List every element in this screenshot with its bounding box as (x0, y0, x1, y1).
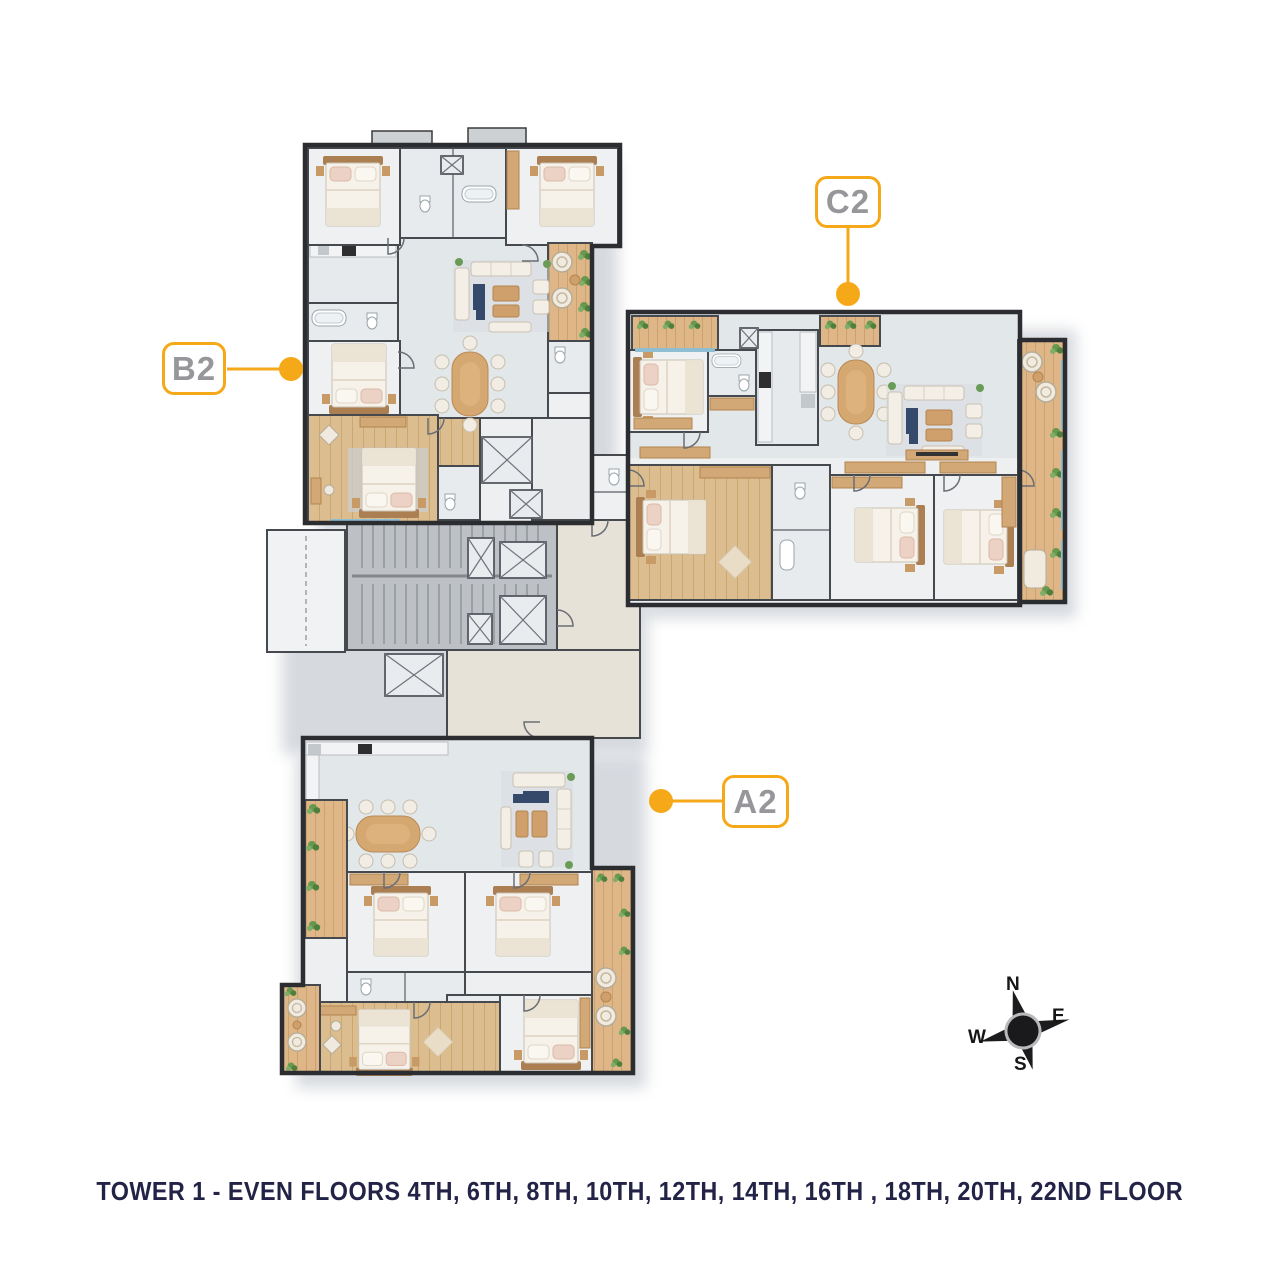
unit-badge-b2[interactable]: B2 (162, 342, 226, 395)
tv (916, 452, 958, 456)
bed (486, 886, 560, 956)
balcony-floor (632, 316, 718, 350)
bedroom-floor (548, 393, 592, 418)
balcony-floor (282, 985, 320, 1073)
vanity (320, 1006, 356, 1015)
bed (316, 156, 390, 226)
bed (352, 448, 426, 518)
unit-marker-dot-c2 (836, 282, 860, 306)
bathroom-floor (438, 466, 480, 520)
unit-badge-a2-label: A2 (733, 783, 777, 821)
sink (318, 246, 329, 255)
bed (349, 1010, 419, 1077)
sofa-set (886, 382, 984, 456)
unit-c2-plan (626, 310, 1065, 607)
fridge (308, 744, 321, 755)
compass-label-south: S (1014, 1054, 1027, 1076)
toilet (795, 483, 805, 499)
wicker-chair (596, 1006, 616, 1026)
unit-badge-c2-label: C2 (826, 183, 870, 221)
toilet (445, 494, 455, 510)
wicker-chair (288, 1033, 306, 1051)
side-table (601, 992, 611, 1002)
wardrobe (832, 477, 902, 488)
wardrobe (700, 467, 770, 478)
bed (633, 350, 703, 424)
ac-ledge (372, 128, 526, 145)
wicker-chair (552, 288, 572, 308)
stove (358, 744, 372, 754)
side-table (570, 275, 580, 285)
wardrobe (580, 998, 590, 1048)
toilet (609, 469, 619, 485)
toilet (361, 979, 371, 995)
unit-marker-dot-a2 (649, 789, 673, 813)
stove (342, 246, 356, 256)
wardrobe (507, 151, 519, 209)
lounge-chair (1024, 550, 1046, 588)
shelf (710, 398, 754, 410)
bed (322, 344, 396, 414)
toilet (367, 313, 377, 329)
toilet (555, 347, 565, 363)
bathtub (312, 310, 346, 326)
unit-badge-c2[interactable]: C2 (815, 176, 881, 228)
compass-label-east: E (1052, 1006, 1065, 1028)
bathtub (780, 540, 794, 570)
unit-badge-a2[interactable]: A2 (722, 775, 789, 828)
wicker-chair (288, 999, 306, 1017)
floor-caption: TOWER 1 - EVEN FLOORS 4TH, 6TH, 8TH, 10T… (0, 1176, 1280, 1207)
side-table (293, 1021, 301, 1029)
lobby-floor (447, 650, 640, 738)
sofa-set (453, 258, 551, 332)
wicker-chair (1022, 352, 1042, 372)
floorplan-canvas: B2 C2 A2 N E W S TOWER 1 - EVEN FLOORS 4… (0, 0, 1280, 1280)
unit-marker-dot-b2 (279, 357, 303, 381)
wardrobe (634, 418, 692, 429)
wicker-chair (552, 252, 572, 272)
bed (364, 886, 438, 956)
wardrobe (1002, 477, 1016, 527)
sofa-set (501, 771, 575, 869)
toilet (420, 196, 430, 212)
fridge (801, 394, 815, 408)
unit-badge-b2-label: B2 (172, 350, 216, 388)
compass-label-west: W (968, 1027, 986, 1049)
floor-caption-text: TOWER 1 - EVEN FLOORS 4TH, 6TH, 8TH, 10T… (97, 1176, 1184, 1207)
stove (759, 372, 771, 388)
wicker-chair (1036, 382, 1056, 402)
bed (530, 156, 604, 226)
floor-plan-svg (0, 0, 1280, 1280)
side-table (1033, 372, 1043, 382)
wicker-chair (596, 968, 616, 988)
unit-a2-plan (282, 736, 635, 1076)
vanity (311, 478, 321, 504)
balcony-floor (305, 800, 347, 938)
toilet (739, 375, 749, 391)
wardrobe (360, 417, 406, 427)
unit-b2-plan (303, 128, 620, 523)
bathtub (462, 186, 496, 202)
bed (855, 498, 925, 572)
bathtub (712, 354, 741, 368)
bed (636, 490, 706, 564)
compass-label-north: N (1006, 974, 1020, 996)
